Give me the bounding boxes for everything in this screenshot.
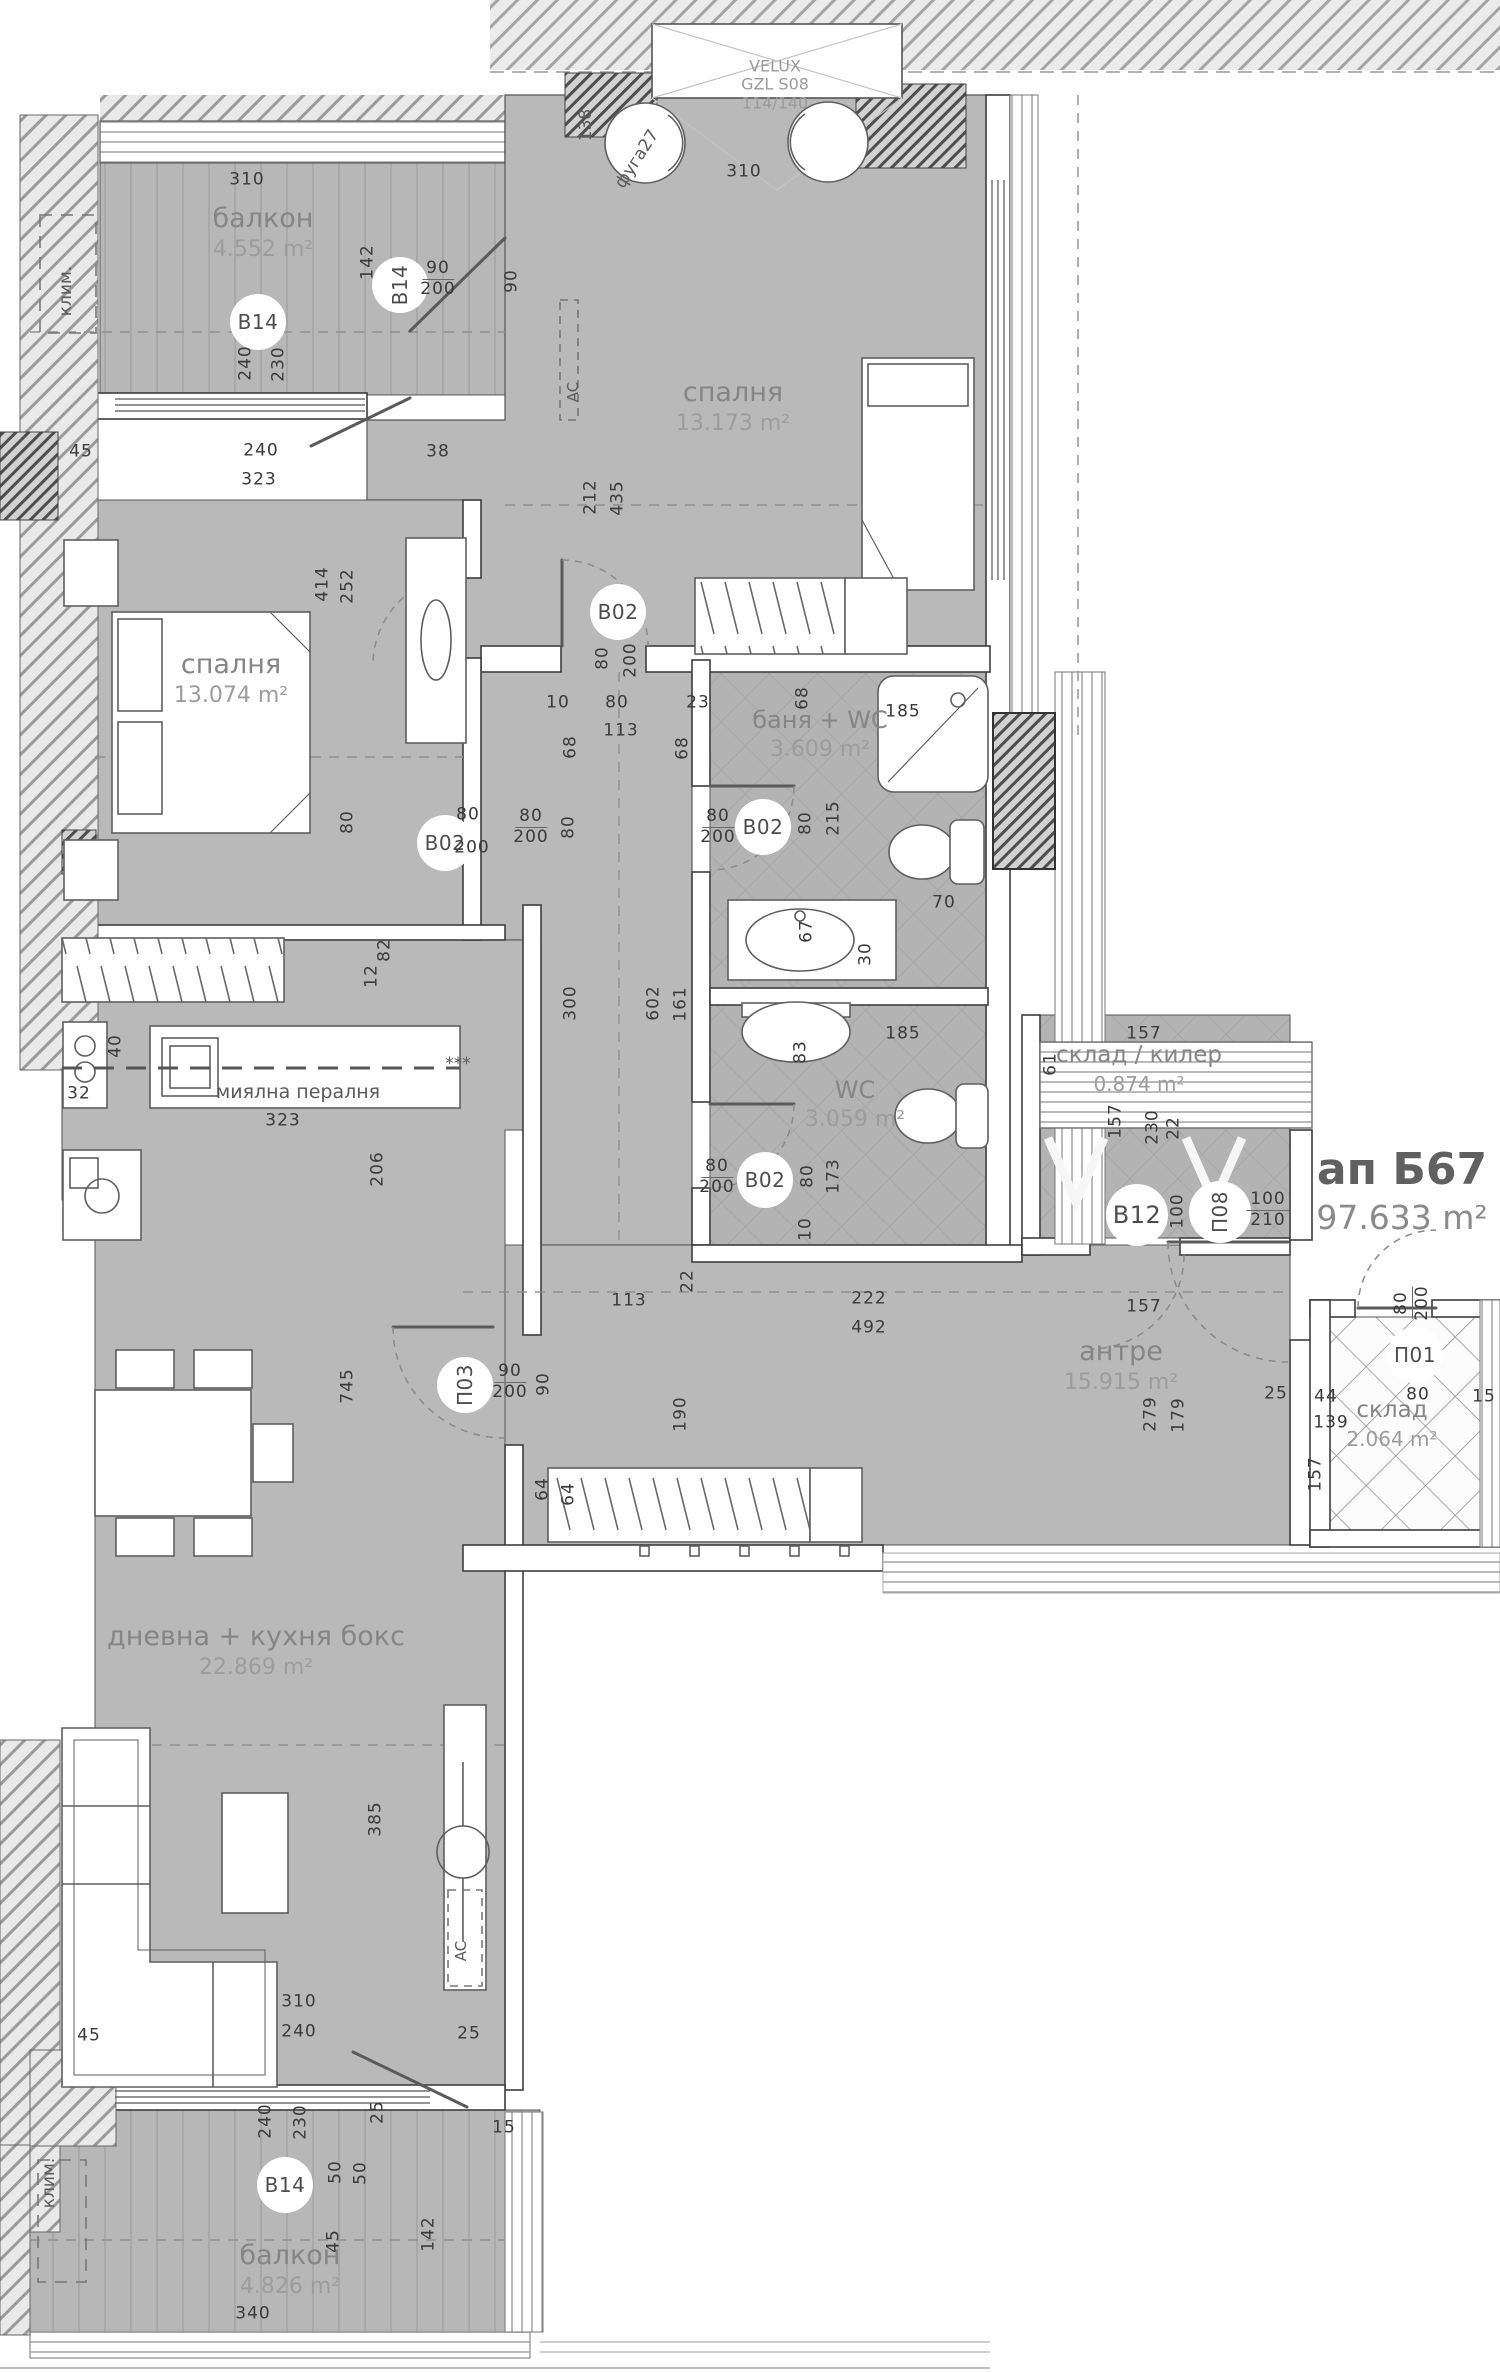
dimension-label: 157 — [1108, 1103, 1125, 1138]
dimension-label: 80 — [798, 811, 815, 835]
dimension-label: 80 — [561, 815, 578, 839]
dimension-label: 83 — [793, 1040, 810, 1064]
dimension-label: 10 — [546, 695, 570, 712]
appliances-label: миялна пералня — [216, 1081, 380, 1103]
apartment-label: ап Б67 97.633 m² — [1316, 1142, 1487, 1238]
dimension-pair: 80200 — [699, 1158, 734, 1196]
room-area: 4.552 m² — [213, 236, 314, 265]
room-area: 13.074 m² — [174, 682, 288, 711]
dimension-pair: 80200 — [513, 808, 548, 846]
dimension-label: 80 — [1406, 1387, 1430, 1404]
room-name: WC — [805, 1075, 905, 1106]
room-area: 15.915 m² — [1064, 1369, 1178, 1398]
room-name: дневна + кухня бокс — [107, 1619, 405, 1654]
dimension-label: 23 — [686, 695, 710, 712]
room-area: 2.064 m² — [1346, 1426, 1437, 1452]
room-area: 3.609 m² — [752, 736, 888, 765]
dimension-label: 200 — [420, 281, 455, 298]
toilet — [889, 820, 984, 884]
dimension-label: 113 — [611, 1293, 646, 1310]
dimension-label: 67 — [799, 919, 816, 943]
dimension-label: 179 — [1171, 1397, 1188, 1432]
shower — [878, 676, 988, 792]
dimension-label: 80 — [595, 646, 612, 670]
door-marker-b02: B02 — [737, 1152, 793, 1208]
dimension-label: 157 — [1308, 1456, 1325, 1491]
dimension-label: 139 — [1313, 1415, 1348, 1432]
dimension-label: 80 — [1393, 1287, 1413, 1319]
dimension-label: 323 — [241, 472, 276, 489]
dimension-label: 100 — [1170, 1193, 1187, 1228]
dimension-label: 385 — [368, 1801, 385, 1836]
dimension-label: 70 — [932, 895, 956, 912]
room-label-living: дневна + кухня бокс22.869 m² — [107, 1619, 405, 1683]
dimension-pair: 80200 — [700, 808, 735, 846]
dimension-label: 492 — [851, 1320, 886, 1337]
dimension-label: 173 — [826, 1158, 843, 1193]
climate-unit-label: клим. — [39, 2158, 59, 2208]
dimension-label: 200 — [492, 1384, 527, 1401]
dimension-label: 157 — [1126, 1026, 1161, 1043]
dimension-label: 38 — [426, 444, 450, 461]
dimension-label: 200 — [623, 642, 640, 677]
dimension-label: 25 — [1264, 1386, 1288, 1403]
room-label-bedroom-top: спалня13.173 m² — [676, 375, 790, 439]
dimension-label: 310 — [229, 172, 264, 189]
dimension-label: 25 — [457, 2026, 481, 2043]
dimension-label: 222 — [851, 1291, 886, 1308]
room-label-bedroom-left: спалня13.074 m² — [174, 647, 288, 711]
dimension-label: 15 — [492, 2120, 516, 2137]
room-name: спалня — [174, 647, 288, 682]
dimension-label: 200 — [513, 829, 548, 846]
dimension-label: 142 — [421, 2216, 438, 2251]
dimension-label: 157 — [1126, 1299, 1161, 1316]
room-area: 22.869 m² — [107, 1654, 405, 1683]
dimension-label: 240 — [281, 2024, 316, 2041]
velux-size: 114/140 — [741, 94, 809, 112]
dimension-label: 100 — [1246, 1191, 1289, 1211]
toilet — [895, 1084, 988, 1148]
dimension-label: 240 — [243, 443, 278, 460]
dimension-label: 310 — [726, 164, 761, 181]
dimension-label: 80 — [702, 808, 734, 828]
dimension-label: 185 — [885, 1026, 920, 1043]
dimension-label: 252 — [340, 568, 357, 603]
dimension-label: 22 — [1166, 1116, 1183, 1140]
coffee-table — [222, 1793, 288, 1913]
dimension-label: 80 — [456, 807, 480, 824]
armchair — [788, 102, 868, 182]
dimension-label: 200 — [1414, 1285, 1431, 1320]
dimension-label: 138 — [576, 109, 596, 141]
room-name: балкон — [213, 201, 314, 236]
dimension-label: 82 — [377, 938, 394, 962]
door-marker-p03: П03 — [437, 1357, 493, 1413]
dimension-label: 90 — [504, 269, 521, 293]
bed-double — [112, 612, 310, 833]
dimension-label: 230 — [1145, 1109, 1162, 1144]
hob-stars-label: *** — [445, 1054, 471, 1074]
dimension-label: 15 — [1472, 1389, 1496, 1406]
dimension-label: 64 — [561, 1482, 578, 1506]
dimension-label: 414 — [315, 566, 332, 601]
dimension-label: 435 — [610, 480, 627, 515]
dimension-label: 68 — [563, 735, 580, 759]
dimension-label: 210 — [1250, 1212, 1285, 1229]
dimension-label: 80 — [340, 810, 357, 834]
dimension-label: 50 — [353, 2161, 370, 2185]
dimension-label: 185 — [885, 704, 920, 721]
door-marker-b14: B14 — [257, 2157, 313, 2213]
bed-single — [862, 358, 974, 590]
dimension-label: 61 — [1043, 1052, 1060, 1076]
climate-unit-label: клим. — [56, 266, 76, 316]
ac-label: AC — [452, 1941, 470, 1961]
dimension-label: 190 — [673, 1396, 690, 1431]
dimension-label: 90 — [494, 1363, 526, 1383]
dimension-label: 310 — [281, 1994, 316, 2011]
door-marker-b12: B12 — [1106, 1184, 1168, 1246]
room-area: 0.874 m² — [1056, 1071, 1222, 1097]
room-name: спалня — [676, 375, 790, 410]
room-name: баня + WC — [752, 705, 888, 736]
room-area: 3.059 m² — [805, 1106, 905, 1135]
wardrobe — [62, 938, 284, 1002]
dimension-pair: 90200 — [420, 260, 455, 298]
dimension-label: 215 — [826, 800, 843, 835]
velux-label: VELUX GZL S08 114/140 — [741, 57, 809, 112]
door-marker-b14: B14 — [230, 294, 286, 350]
apartment-id: ап Б67 — [1316, 1142, 1487, 1197]
dimension-label: 745 — [340, 1368, 357, 1403]
dimension-label: 12 — [364, 964, 381, 988]
dimension-label: 142 — [360, 244, 377, 279]
dimension-label: 212 — [583, 479, 600, 514]
room-area: 13.173 m² — [676, 410, 790, 439]
door-marker-b02: B02 — [735, 799, 791, 855]
dimension-label: 40 — [108, 1034, 125, 1058]
floor-plan: балкон4.552 m² спалня13.173 m² спалня13.… — [0, 0, 1500, 2372]
dimension-label: 80 — [515, 808, 547, 828]
room-label-bath-wc: баня + WC3.609 m² — [752, 705, 888, 765]
dimension-label: 200 — [699, 1179, 734, 1196]
dimension-label: 30 — [858, 942, 875, 966]
wardrobe — [695, 578, 907, 654]
dimension-label: 80 — [605, 695, 629, 712]
dimension-label: 240 — [258, 2103, 275, 2138]
apartment-area: 97.633 m² — [1316, 1197, 1487, 1238]
dimension-pair: 100210 — [1246, 1191, 1289, 1229]
ac-label: AC — [564, 382, 582, 402]
dimension-label: 50 — [328, 2160, 345, 2184]
dimension-label: 45 — [77, 2028, 101, 2045]
dimension-label: 68 — [795, 686, 812, 710]
dimension-label: 240 — [238, 345, 255, 380]
room-name: склад / килер — [1056, 1041, 1222, 1071]
door-marker-p01: П01 — [1387, 1327, 1443, 1383]
dimension-label: 340 — [235, 2306, 270, 2323]
door-marker-b02: B02 — [590, 584, 646, 640]
dimension-label: 206 — [370, 1151, 387, 1186]
room-label-storage-closet: склад / килер0.874 m² — [1056, 1041, 1222, 1097]
dimension-label: 90 — [422, 260, 454, 280]
room-label-hallway: антре15.915 m² — [1064, 1334, 1178, 1398]
room-label-balcony-top: балкон4.552 m² — [213, 201, 314, 265]
room-area: 4.826 m² — [240, 2273, 341, 2302]
dimension-label: 230 — [293, 2104, 310, 2139]
dimension-label: 45 — [69, 444, 93, 461]
velux-model: GZL S08 — [741, 76, 809, 94]
dimension-label: 161 — [673, 986, 690, 1021]
velux-brand: VELUX — [741, 57, 809, 75]
dimension-label: 200 — [700, 829, 735, 846]
dimension-label: 90 — [536, 1372, 553, 1396]
dimension-label: 323 — [265, 1113, 300, 1130]
dimension-label: 64 — [535, 1477, 552, 1501]
room-name: антре — [1064, 1334, 1178, 1369]
dimension-pair: 90200 — [492, 1363, 527, 1401]
dimension-label: 279 — [1143, 1396, 1160, 1431]
dimension-label: 200 — [454, 840, 489, 857]
dimension-label: 44 — [1314, 1389, 1338, 1406]
dimension-label: 80 — [800, 1164, 817, 1188]
dimension-label: 602 — [646, 985, 663, 1020]
dimension-pair: 80200 — [1393, 1285, 1431, 1320]
dresser-mirror — [406, 538, 466, 743]
dimension-label: 113 — [603, 723, 638, 740]
dimension-label: 68 — [675, 736, 692, 760]
dimension-label: 45 — [326, 2229, 343, 2253]
room-label-wc: WC3.059 m² — [805, 1075, 905, 1135]
dimension-label: 22 — [680, 1269, 697, 1293]
dimension-label: 80 — [701, 1158, 733, 1178]
dimension-label: 25 — [370, 2100, 387, 2124]
dimension-label: 10 — [798, 1217, 815, 1241]
door-marker-p08: П08 — [1189, 1181, 1251, 1243]
dimension-label: 230 — [271, 346, 288, 381]
dimension-label: 32 — [67, 1086, 91, 1103]
dimension-label: 300 — [563, 985, 580, 1020]
